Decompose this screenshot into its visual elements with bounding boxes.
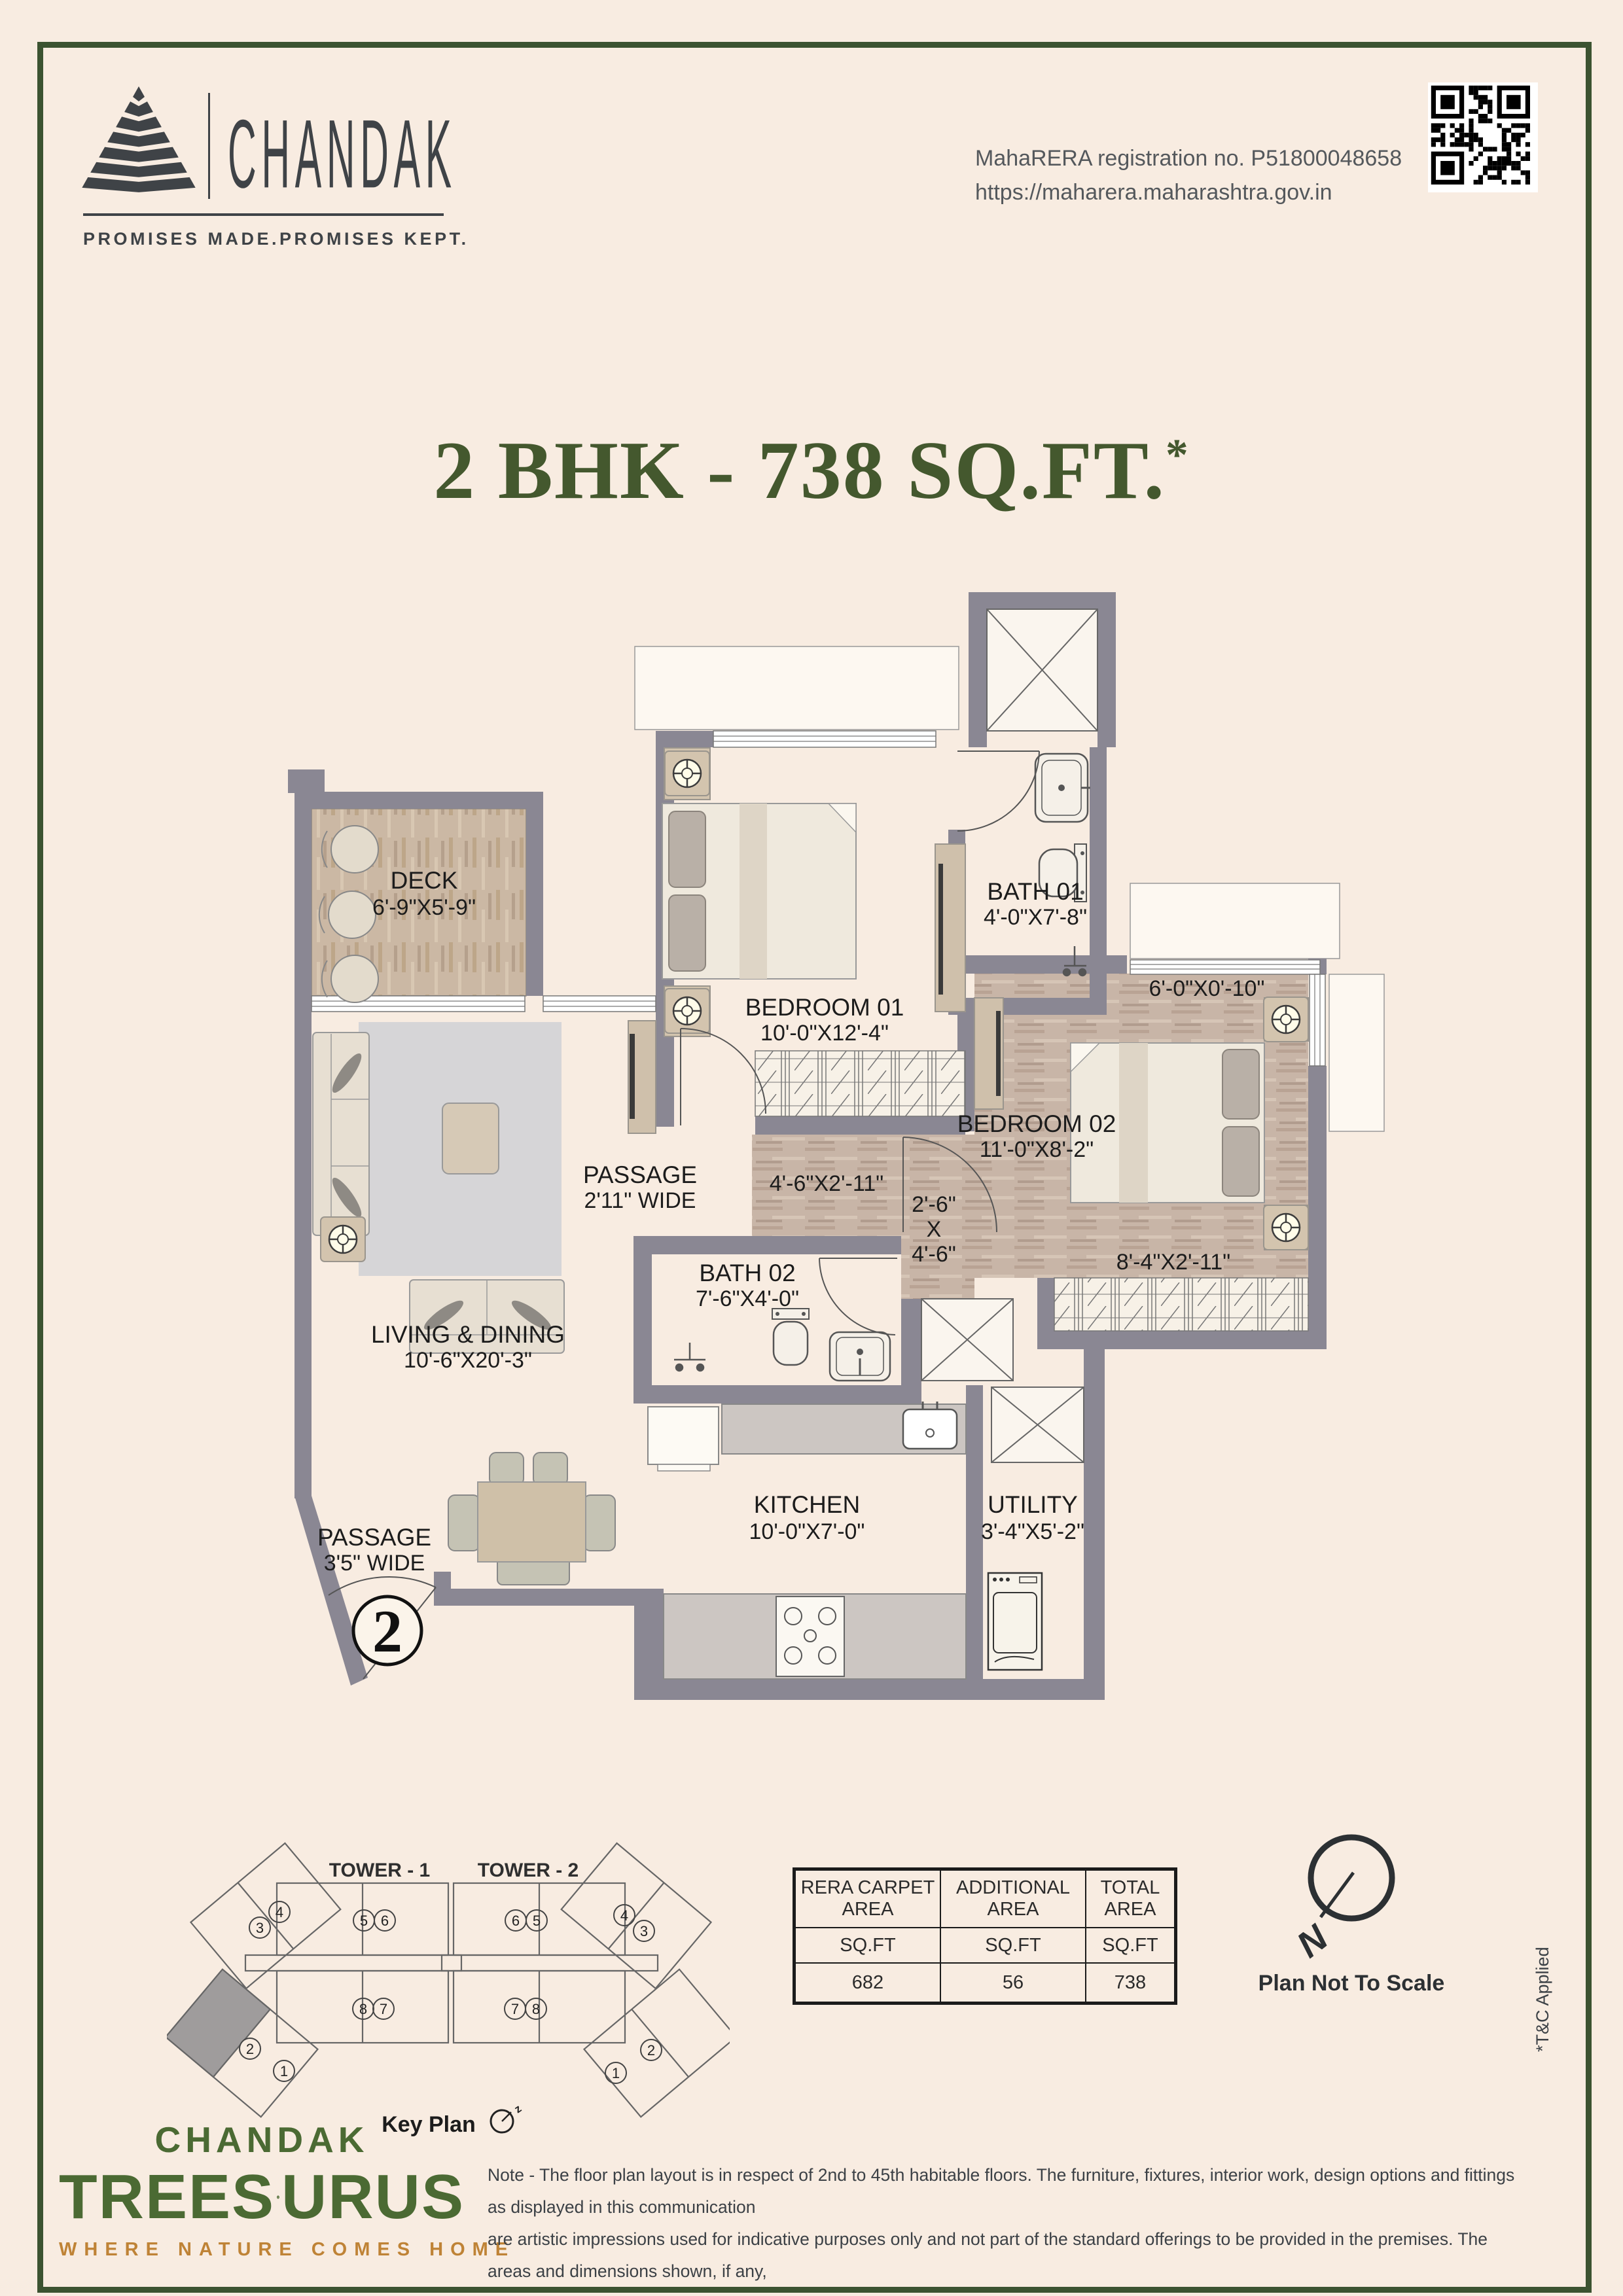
room-label-bedroom01: BEDROOM 01	[745, 994, 904, 1021]
coffee-table	[442, 1103, 499, 1174]
ceiling-light-icon	[665, 989, 709, 1033]
bath02-shower-icon	[674, 1343, 705, 1371]
table-unit: SQ.FT	[796, 1928, 941, 1964]
plan-not-to-scale: Plan Not To Scale	[1247, 1971, 1456, 1996]
room-label-utility: UTILITY	[988, 1491, 1078, 1518]
tree-leaf-icon	[277, 2164, 279, 2230]
svg-text:6: 6	[512, 1913, 520, 1929]
treesourus-wordmark: TREES URUS	[59, 2164, 465, 2230]
svg-text:4: 4	[620, 1907, 628, 1924]
ceiling-light-icon	[1264, 997, 1308, 1042]
dim-passage-b1: 2'-6"	[912, 1192, 956, 1217]
ceiling-light-icon	[321, 1217, 365, 1262]
dining-set	[448, 1453, 615, 1585]
sofa-three-seater	[313, 1033, 369, 1235]
svg-text:2: 2	[246, 2041, 254, 2057]
svg-text:2: 2	[647, 2042, 655, 2058]
bedroom02-wardrobe	[1054, 1278, 1308, 1331]
washing-machine	[988, 1573, 1042, 1670]
disclaimer-note: Note - The floor plan layout is in respe…	[488, 2159, 1535, 2296]
svg-text:3: 3	[640, 1923, 648, 1939]
area-table: RERA CARPET AREA ADDITIONAL AREA TOTAL A…	[793, 1867, 1177, 2005]
room-label-kitchen: KITCHEN	[754, 1491, 860, 1518]
svg-text:1: 1	[612, 2065, 620, 2081]
footer-tagline: WHERE NATURE COMES HOME	[59, 2239, 465, 2261]
bedroom01-wardrobe	[755, 1051, 965, 1116]
svg-text:8: 8	[532, 2001, 540, 2017]
rera-url: https://maharera.maharashtra.gov.in	[975, 175, 1402, 209]
north-compass-icon: N	[1276, 1820, 1433, 1971]
dim-passage-b2: X	[927, 1217, 942, 1242]
tv-unit-bedroom01	[935, 844, 965, 1012]
ledge-above-bedroom01	[635, 646, 959, 730]
rera-info: MahaRERA registration no. P51800048658 h…	[975, 141, 1402, 209]
bed-bedroom01	[662, 804, 856, 979]
kitchen-stove	[776, 1597, 844, 1676]
room-dims-bath01: 4'-0"X7'-8"	[984, 905, 1087, 930]
ledge-right-bedroom02	[1329, 974, 1384, 1131]
svg-text:z: z	[512, 2102, 524, 2115]
room-dims-bedroom01: 10'-0"X12'-4"	[760, 1021, 889, 1046]
tv-unit-bedroom02	[974, 998, 1003, 1109]
brand-name: CHANDAK	[228, 98, 457, 210]
highlighted-unit	[167, 1969, 270, 2077]
svg-text:5: 5	[360, 1913, 368, 1929]
room-dims-passage1: 2'11" WIDE	[584, 1188, 696, 1213]
note-line: are as per the plans approved by the con…	[488, 2287, 1535, 2296]
dim-bedroom02-bottom: 8'-4"X2'-11"	[1116, 1250, 1230, 1275]
room-label-deck: DECK	[391, 867, 458, 894]
ceiling-light-icon	[1264, 1205, 1308, 1250]
svg-text:6: 6	[381, 1913, 389, 1929]
footer-logo: CHANDAK TREES URUS WHERE NATURE COMES HO…	[59, 2119, 465, 2261]
kitchen-sink	[903, 1402, 957, 1449]
tnc-note: *T&C Applied	[1533, 1856, 1553, 2052]
svg-text:5: 5	[533, 1913, 541, 1929]
entrance-number: 2	[372, 1598, 402, 1665]
room-dims-bath02: 7'-6"X4'-0"	[696, 1286, 799, 1311]
compass-north-label: N	[1289, 1916, 1336, 1966]
rera-registration: MahaRERA registration no. P51800048658	[975, 141, 1402, 175]
kitchen-fridge	[648, 1407, 719, 1471]
note-line: Note - The floor plan layout is in respe…	[488, 2159, 1535, 2223]
key-plan-north-icon: z	[491, 2102, 524, 2132]
page-title: 2 BHK - 738 SQ.FT.*	[0, 424, 1623, 518]
room-dims-bedroom02: 11'-0"X8'-2"	[980, 1137, 1094, 1162]
logo-divider	[208, 93, 210, 199]
tv-unit-living	[628, 1021, 656, 1133]
room-dims-utility: 3'-4"X5'-2"	[981, 1519, 1084, 1544]
room-dims-passage2: 3'5" WIDE	[324, 1551, 425, 1576]
room-label-passage1: PASSAGE	[583, 1161, 697, 1188]
dim-passage-b3: 4'-6"	[912, 1242, 956, 1267]
tower2-label: TOWER - 2	[478, 1860, 579, 1881]
svg-text:4: 4	[276, 1904, 283, 1920]
table-header: TOTAL AREA	[1086, 1871, 1174, 1928]
chandak-pyramid-logo-icon	[80, 80, 198, 199]
room-dims-deck: 6'-9"X5'-9"	[372, 895, 476, 920]
svg-text:8: 8	[359, 2001, 367, 2017]
entrance-marker: 2	[353, 1597, 421, 1665]
dim-passage-a: 4'-6"X2'-11"	[770, 1171, 883, 1196]
brand-tagline: PROMISES MADE.PROMISES KEPT.	[83, 229, 463, 249]
tower2-unit-numbers: 6 5 7 8 4 3 1 2	[505, 1905, 662, 2083]
bath02-sink	[830, 1332, 890, 1381]
dim-bedroom02-top: 6'-0"X0'-10"	[1149, 976, 1265, 1001]
room-label-bath01: BATH 01	[987, 878, 1083, 905]
ledge-above-bedroom02	[1130, 883, 1340, 959]
footer-brand: CHANDAK	[59, 2119, 465, 2161]
bath01-sink	[1035, 754, 1090, 822]
tower1-label: TOWER - 1	[329, 1860, 430, 1881]
table-unit: SQ.FT	[941, 1928, 1086, 1964]
room-dims-kitchen: 10'-0"X7'-0"	[749, 1519, 865, 1544]
ceiling-light-icon	[665, 751, 709, 796]
room-label-bath02: BATH 02	[699, 1260, 795, 1286]
title-asterisk: *	[1166, 429, 1190, 480]
table-value: 56	[941, 1964, 1086, 2002]
svg-text:1: 1	[280, 2063, 288, 2079]
room-label-passage2: PASSAGE	[317, 1524, 431, 1551]
svg-text:3: 3	[256, 1920, 264, 1936]
table-header: ADDITIONAL AREA	[941, 1871, 1086, 1928]
note-line: are artistic impressions used for indica…	[488, 2223, 1535, 2287]
table-value: 682	[796, 1964, 941, 2002]
table-unit: SQ.FT	[1086, 1928, 1174, 1964]
svg-text:7: 7	[380, 2001, 387, 2017]
room-dims-living: 10'-6"X20'-3"	[404, 1348, 532, 1373]
svg-text:7: 7	[511, 2001, 519, 2017]
room-label-living: LIVING & DINING	[371, 1321, 565, 1348]
key-plan: TOWER - 1 TOWER - 2 3 4 5 6 8 7 2 1 6 5 …	[167, 1819, 730, 2146]
brochure-page: CHANDAK PROMISES MADE.PROMISES KEPT. Mah…	[0, 0, 1623, 2296]
bath02-toilet	[772, 1309, 809, 1365]
floor-plan: 2 DECK 6'-9"X5'-9" BEDROOM 01 10'-0"X12'…	[281, 576, 1407, 1754]
table-value: 738	[1086, 1964, 1174, 2002]
table-header: RERA CARPET AREA	[796, 1871, 941, 1928]
qr-code	[1428, 82, 1538, 192]
logo-rule	[83, 213, 444, 216]
room-label-bedroom02: BEDROOM 02	[957, 1110, 1116, 1137]
